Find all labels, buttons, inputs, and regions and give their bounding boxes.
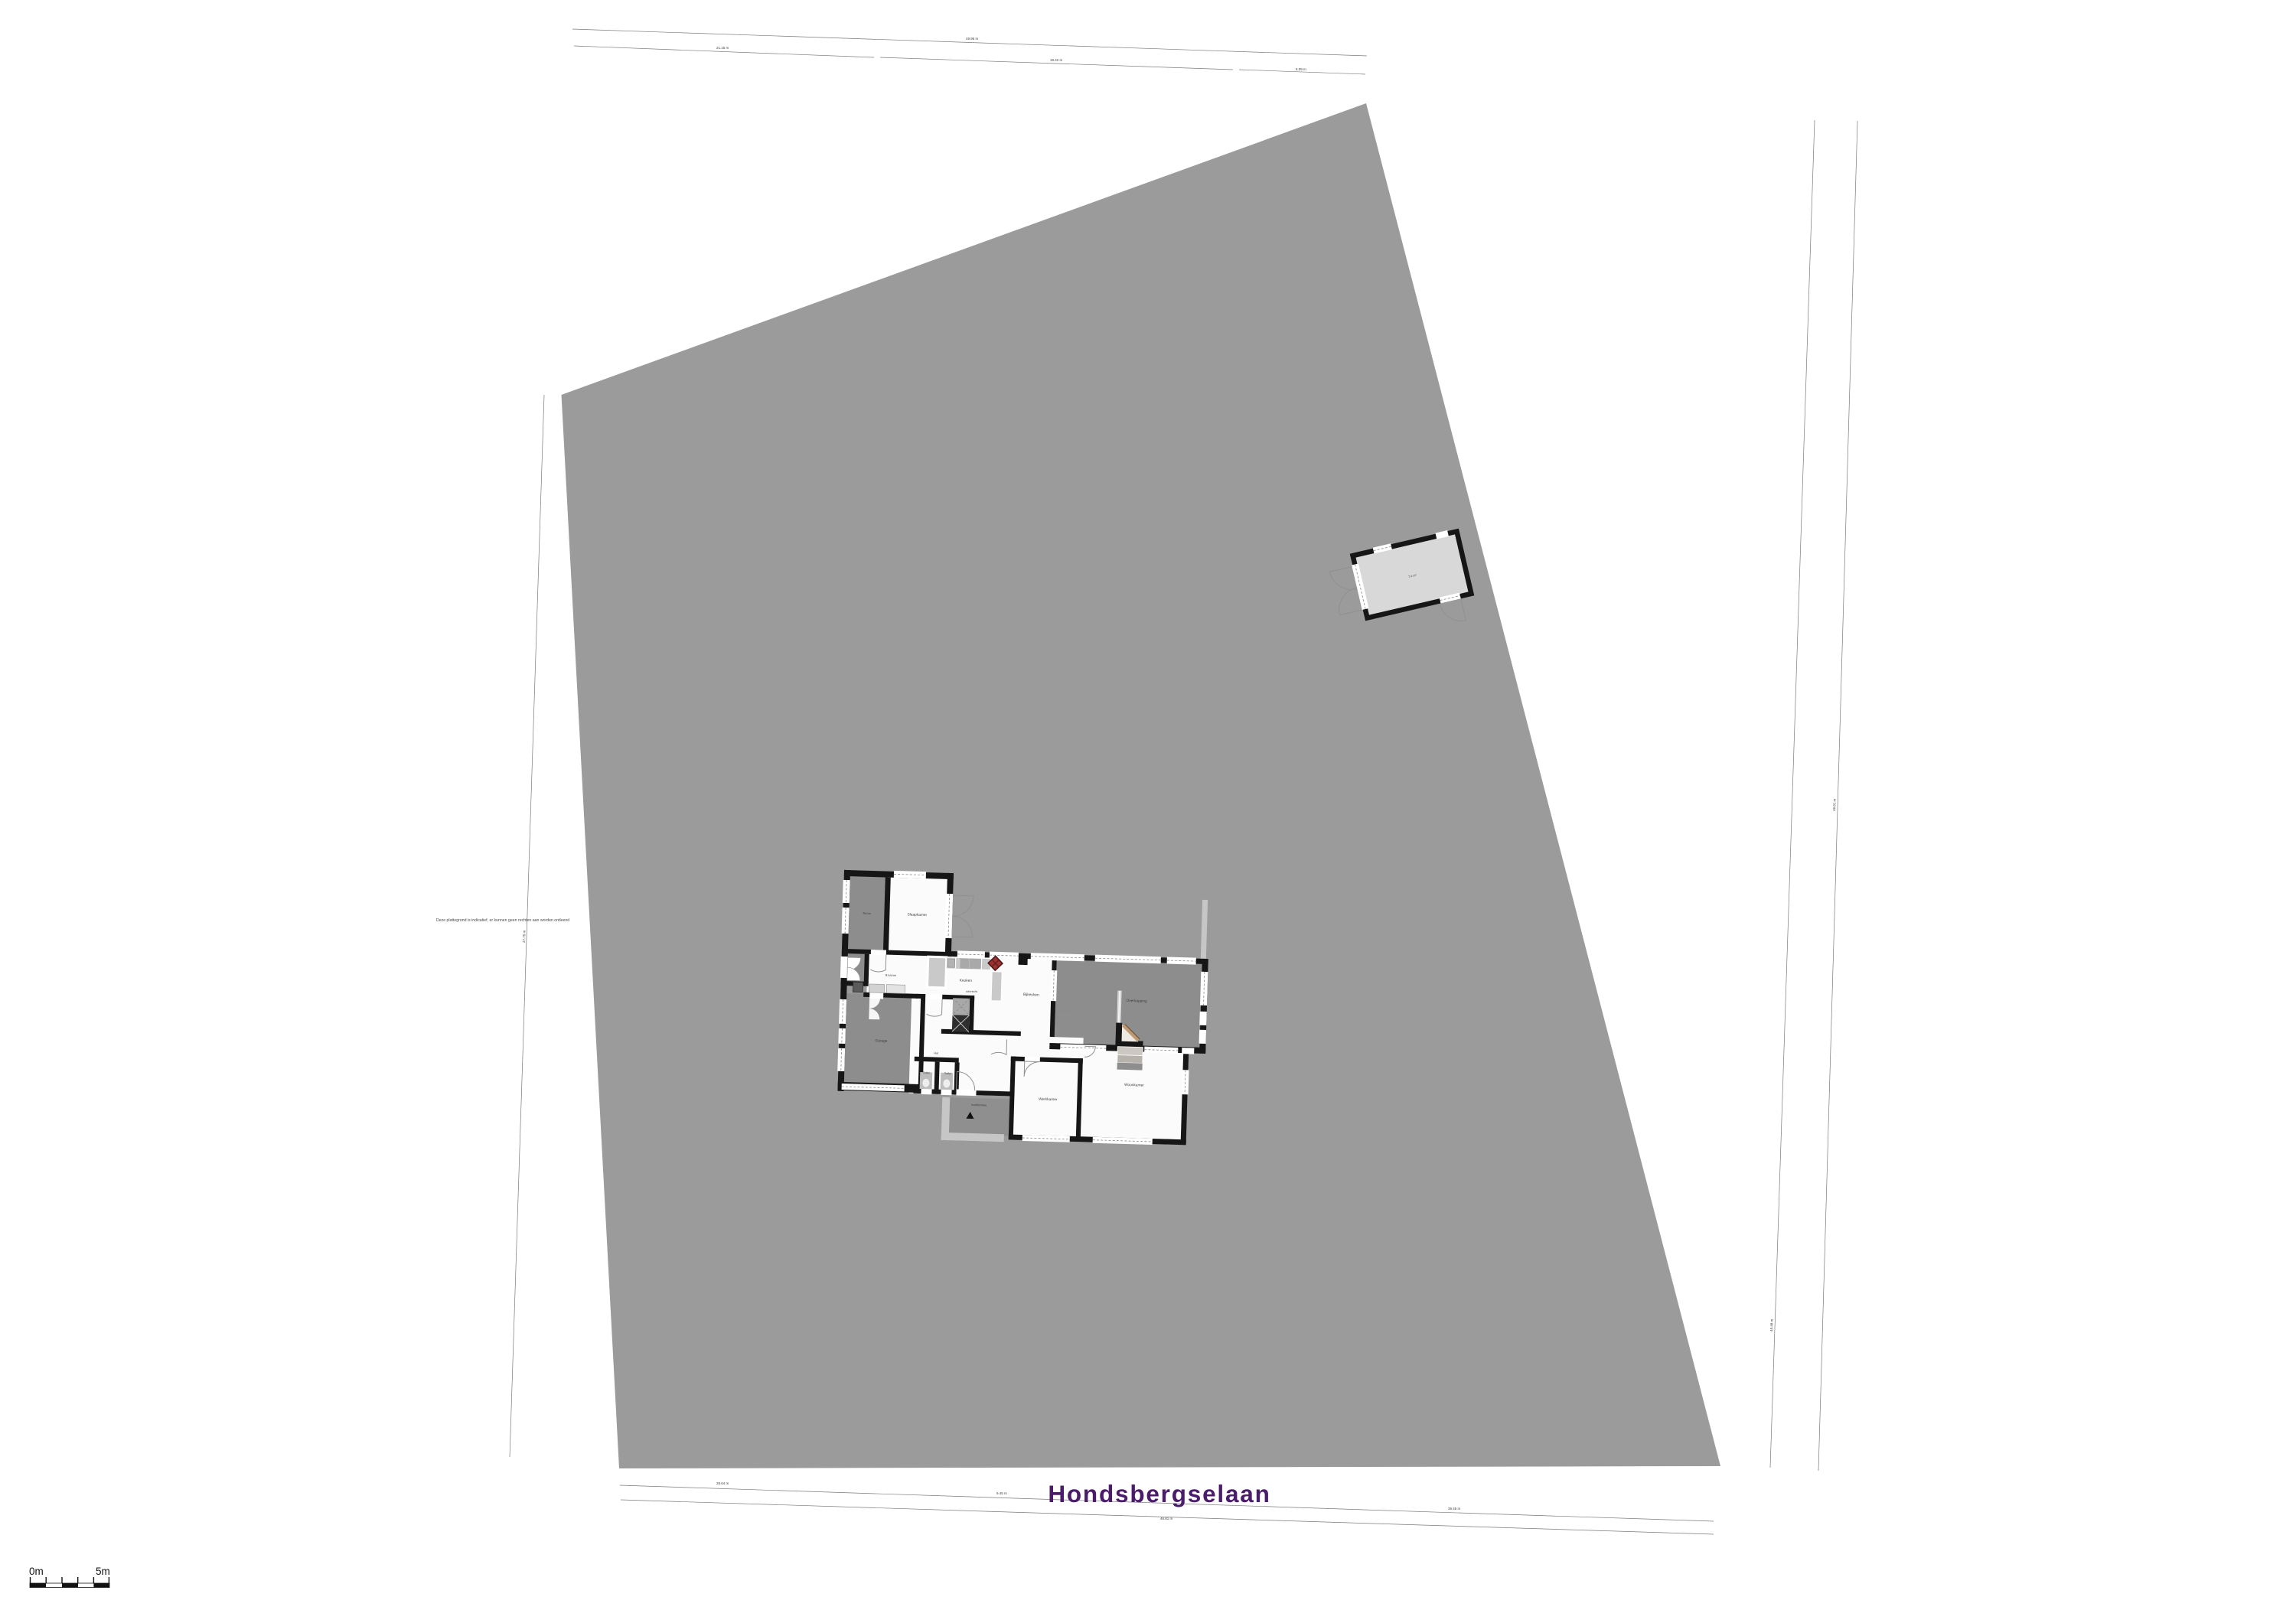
svg-text:Slaapkamer: Slaapkamer [907, 912, 927, 917]
svg-text:Keuken: Keuken [960, 978, 973, 983]
svg-text:49.95 m: 49.95 m [966, 37, 979, 41]
svg-text:46.81 m: 46.81 m [1160, 1517, 1173, 1520]
svg-text:Deze plattegrond is indicatief: Deze plattegrond is indicatief, er kunne… [436, 918, 569, 923]
svg-text:Overkapping: Overkapping [1126, 999, 1147, 1004]
svg-text:5.09 m: 5.09 m [1296, 67, 1306, 71]
svg-text:0m: 0m [29, 1566, 44, 1577]
svg-text:39.45 m: 39.45 m [1448, 1507, 1461, 1511]
svg-text:27.75 m: 27.75 m [522, 930, 527, 943]
svg-text:Woonkamer: Woonkamer [1124, 1083, 1144, 1088]
svg-text:Toilet: Toilet [944, 1072, 952, 1075]
svg-text:Hal: Hal [934, 1051, 938, 1054]
svg-text:hoofdentree: hoofdentree [971, 1103, 987, 1107]
svg-text:aanrecht: aanrecht [966, 990, 978, 993]
svg-text:Werkkamer: Werkkamer [1039, 1097, 1058, 1103]
svg-text:5m: 5m [96, 1566, 110, 1577]
svg-text:28.64 m: 28.64 m [716, 1481, 729, 1485]
svg-text:Garage: Garage [875, 1038, 888, 1043]
svg-text:Bijkeuken: Bijkeuken [1023, 992, 1039, 998]
svg-text:19.42 m: 19.42 m [1050, 58, 1063, 62]
svg-text:B.kamer: B.kamer [885, 974, 897, 977]
svg-text:Hondsbergselaan: Hondsbergselaan [1048, 1480, 1270, 1507]
svg-text:Terras: Terras [863, 912, 871, 915]
svg-text:46.81 m: 46.81 m [1832, 798, 1837, 811]
svg-text:9.45 m: 9.45 m [996, 1491, 1007, 1495]
svg-text:Toilet: Toilet [923, 1071, 931, 1074]
svg-text:45.48 m: 45.48 m [1769, 1318, 1774, 1331]
svg-text:21.15 m: 21.15 m [716, 46, 729, 50]
